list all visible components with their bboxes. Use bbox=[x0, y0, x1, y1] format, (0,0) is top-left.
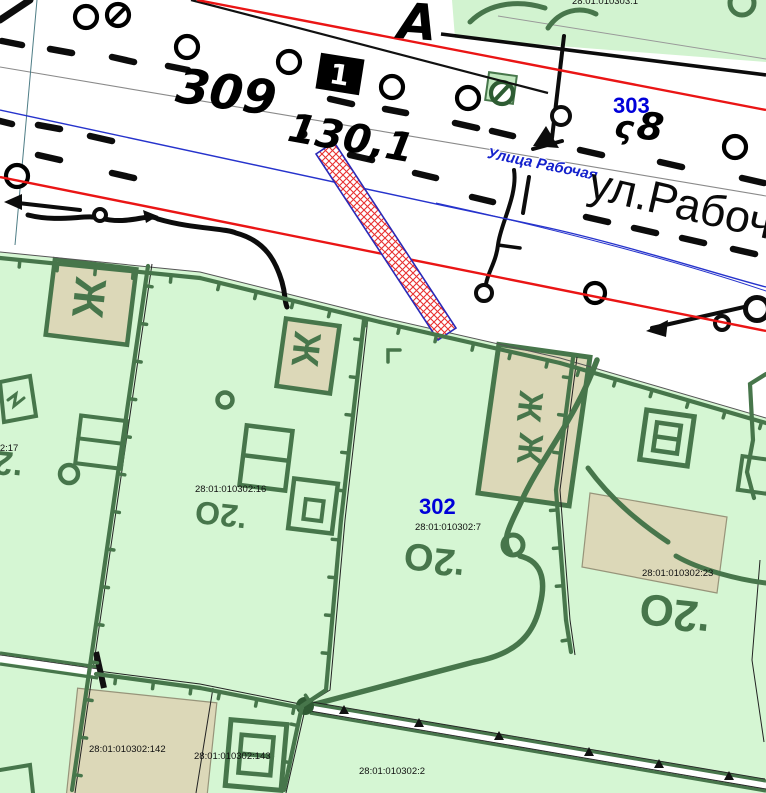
topo-filled-square bbox=[315, 53, 364, 95]
building-residential-2 bbox=[277, 319, 340, 394]
map-canvas bbox=[0, 0, 766, 793]
elevation-dot bbox=[299, 130, 308, 139]
building-parcel-142 bbox=[66, 688, 217, 793]
map-viewport[interactable]: 28:01:010303:1303Улица Рабочаяул.Рабочая… bbox=[0, 0, 766, 793]
